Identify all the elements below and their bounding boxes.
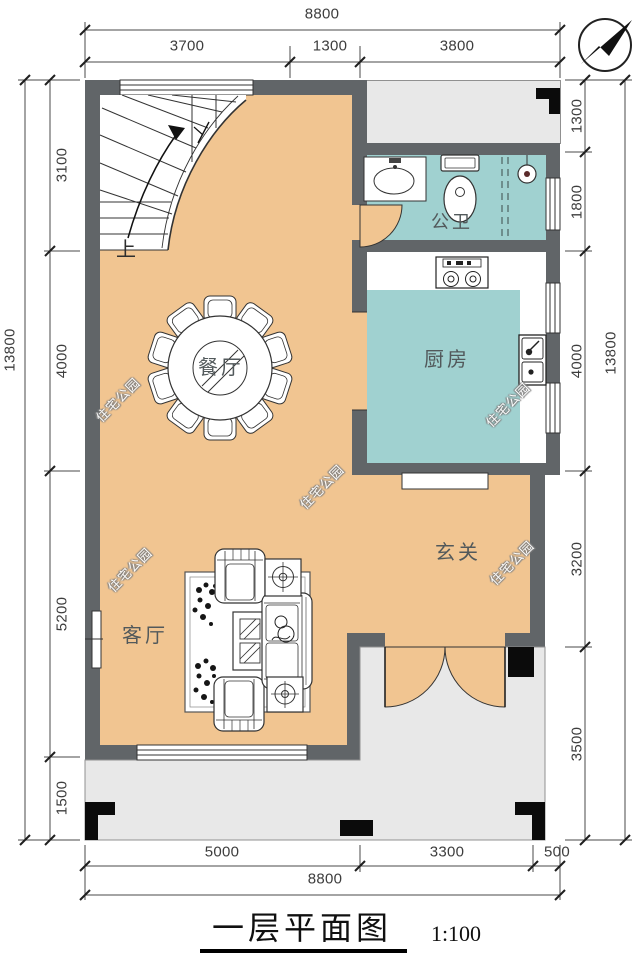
north-arrow-icon: [579, 19, 632, 71]
window-kitchen-right-2: [546, 383, 560, 433]
stairs: [100, 95, 246, 250]
window-living-bottom: [137, 745, 307, 760]
window-living-left: [85, 611, 103, 668]
sofa-set: [185, 549, 312, 731]
side-table-top: [265, 559, 301, 596]
window-kitchen-right-1: [546, 283, 560, 333]
kitchen-foyer-opening: [402, 473, 488, 489]
plan-scale: 1:100: [431, 923, 481, 945]
armchair-bottom: [214, 677, 264, 731]
sink: [364, 157, 426, 201]
label-kitchen: 厨房: [424, 350, 470, 370]
sofa: [262, 593, 312, 689]
armchair-top: [215, 549, 265, 603]
window-top: [120, 80, 253, 95]
label-stairs-up: 上: [116, 240, 136, 260]
stove: [436, 257, 488, 288]
window-bathroom-right: [546, 178, 560, 230]
label-bathroom: 公卫: [431, 213, 473, 231]
title-underline: [200, 949, 407, 953]
label-living: 客厅: [122, 626, 168, 646]
label-dining: 餐厅: [198, 358, 244, 378]
label-foyer: 玄关: [435, 543, 481, 563]
floor-plan-sheet: 8800 3700 1300 3800 5000 3300 500 8800 1…: [0, 0, 640, 964]
side-table-bottom: [267, 677, 303, 712]
plan-title: 一层平面图: [212, 912, 392, 944]
kitchen-side-opening: [352, 312, 367, 410]
shower-head: [518, 155, 536, 183]
shower-partition: [502, 157, 508, 239]
kitchen-sink: [519, 335, 546, 385]
bathroom-door: [360, 205, 402, 247]
